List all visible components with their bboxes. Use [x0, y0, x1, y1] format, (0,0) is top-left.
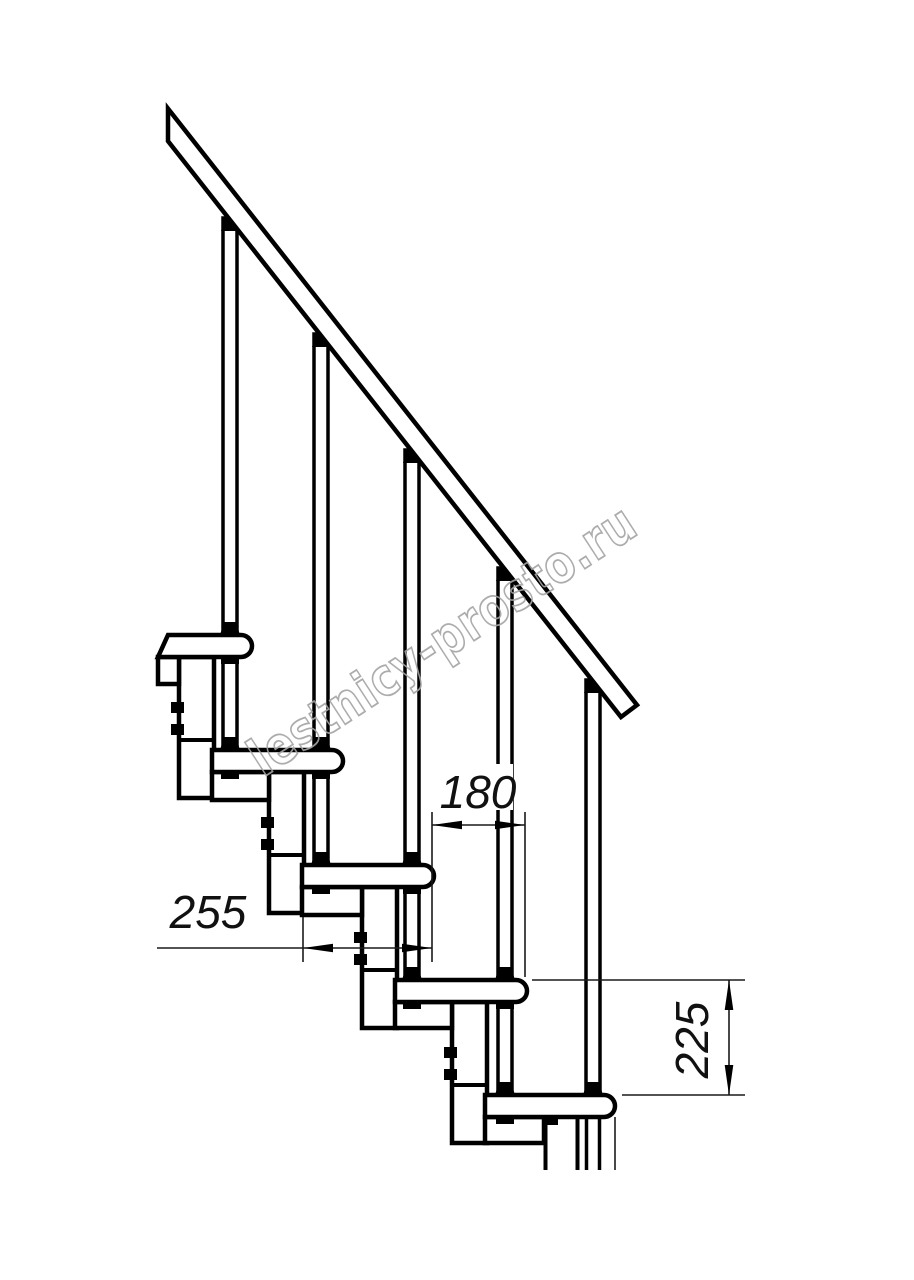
plate-3: [302, 887, 362, 915]
baluster-2: [314, 334, 328, 867]
tread-1: [158, 635, 252, 657]
column-4: [452, 1002, 487, 1143]
arrowhead-down: [725, 1065, 734, 1095]
arrowhead-left: [303, 944, 333, 953]
nut: [496, 1001, 514, 1009]
tread-5: [485, 1095, 615, 1117]
column-1: [179, 657, 214, 798]
dimension-depth-value: 255: [169, 886, 247, 938]
baluster-4: [498, 568, 512, 1097]
column-1-clamp: [171, 724, 184, 735]
plate-2: [212, 772, 269, 800]
nut: [221, 656, 239, 664]
column-3: [362, 887, 397, 1028]
column-2: [269, 772, 304, 913]
baluster-1: [223, 218, 237, 752]
tread-4: [395, 980, 527, 1002]
dimension-run-value: 180: [440, 766, 517, 818]
nut: [496, 1116, 514, 1124]
column-2-clamp: [261, 817, 274, 828]
staircase-elevation-drawing: 180 255 225 lestnicy-prosto.ru: [0, 0, 914, 1280]
nut: [542, 1116, 558, 1125]
column-3-clamp: [354, 932, 367, 943]
dimension-rise-value: 225: [666, 1001, 718, 1079]
column-4-clamp: [444, 1069, 457, 1080]
baluster-3: [405, 450, 419, 982]
arrowhead-up: [725, 980, 734, 1010]
plate-1: [158, 657, 179, 684]
nut: [312, 771, 330, 779]
tread-3: [302, 865, 434, 887]
drawing-canvas: 180 255 225 lestnicy-prosto.ru: [0, 0, 914, 1280]
column-1-clamp: [171, 702, 184, 713]
column-2-clamp: [261, 839, 274, 850]
column-4-clamp: [444, 1047, 457, 1058]
arrowhead-left: [432, 821, 462, 830]
nut: [221, 771, 239, 779]
nut: [403, 886, 421, 894]
nut: [403, 1001, 421, 1009]
baluster-5: [586, 680, 600, 1095]
nut: [312, 886, 330, 894]
plate-5: [485, 1117, 544, 1143]
column-3-clamp: [354, 954, 367, 965]
dimension-rise-225: 225: [532, 980, 745, 1095]
